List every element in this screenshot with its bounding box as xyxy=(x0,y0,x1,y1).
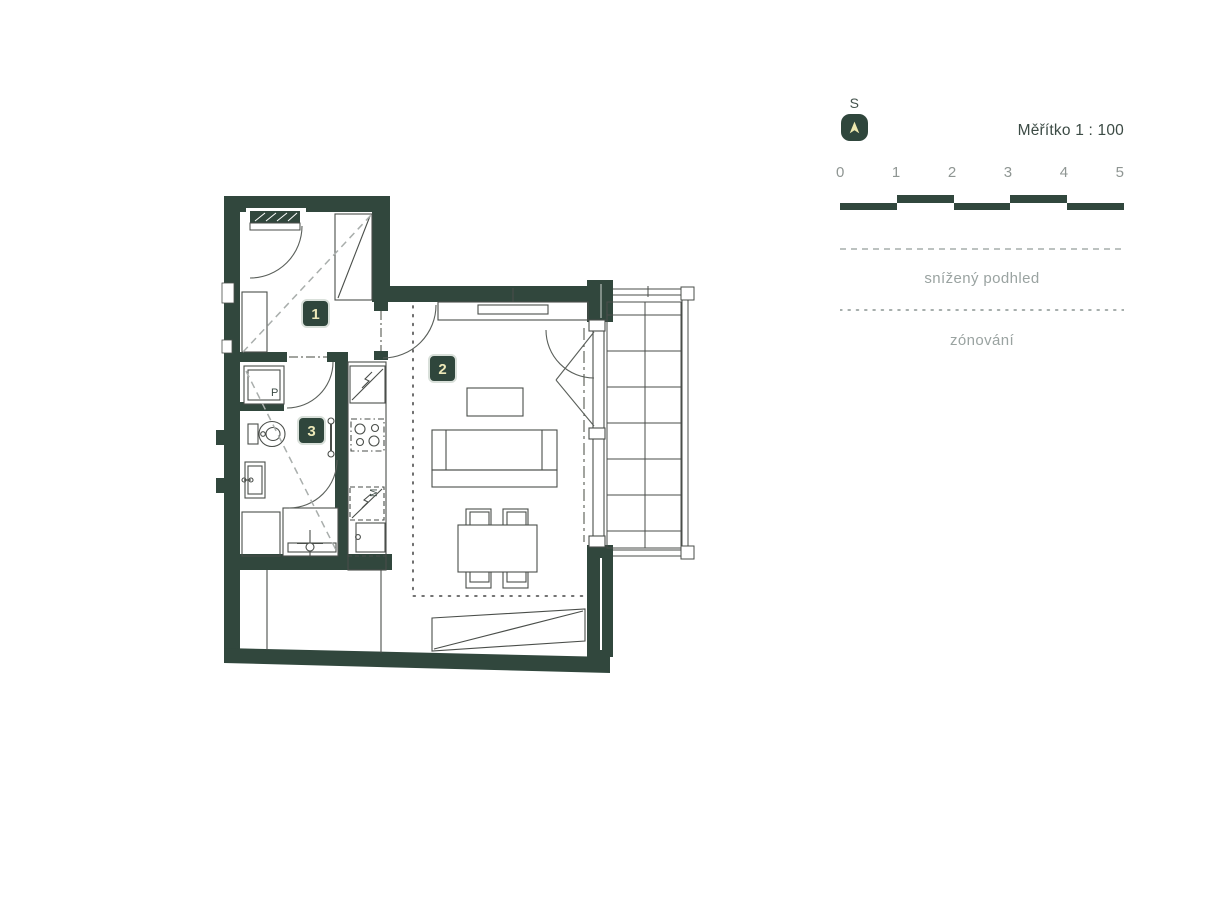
toilet-icon xyxy=(248,422,285,447)
zoning-label: zónování xyxy=(840,332,1124,349)
shower-door-swing xyxy=(289,460,337,508)
kitchen-counter xyxy=(348,362,386,570)
kitchen: M xyxy=(348,362,386,570)
sink-icon xyxy=(356,523,385,552)
balcony-door xyxy=(546,330,594,426)
dining-set-icon xyxy=(458,509,537,588)
room-badges: 1 2 3 xyxy=(298,300,456,444)
scale-tick: 4 xyxy=(1060,164,1068,181)
dishwasher-icon: M xyxy=(350,487,384,520)
zoning-legend-line xyxy=(840,308,1124,312)
svg-text:3: 3 xyxy=(307,423,315,440)
door-hall-bath xyxy=(287,357,333,408)
scale-tick: 3 xyxy=(1004,164,1012,181)
balcony-glazing xyxy=(584,320,605,547)
svg-text:P: P xyxy=(271,387,278,399)
scale-tick: 0 xyxy=(836,164,844,181)
north-label: S xyxy=(841,95,868,111)
room-badge-3: 3 xyxy=(298,417,325,444)
sofa-icon xyxy=(432,430,557,487)
entry-door-swing xyxy=(250,226,302,278)
balcony xyxy=(607,286,694,559)
scale-label: Měřítko 1 : 100 xyxy=(824,122,1124,140)
scale-tick: 5 xyxy=(1116,164,1124,181)
door-hall-living xyxy=(381,305,436,358)
scale-bar xyxy=(840,195,1124,210)
washbasin-icon xyxy=(242,462,265,498)
svg-text:M: M xyxy=(369,489,380,497)
entry-door xyxy=(246,208,306,278)
bathroom: P xyxy=(242,366,338,557)
room-badge-2: 2 xyxy=(429,355,456,382)
hall-cabinet xyxy=(242,292,267,352)
svg-text:2: 2 xyxy=(438,361,446,378)
balcony-decking xyxy=(607,302,681,548)
fridge-icon xyxy=(350,366,385,403)
room-badge-1: 1 xyxy=(302,300,329,327)
cooktop-icon xyxy=(351,419,384,451)
shower-icon xyxy=(283,508,338,557)
washing-machine-icon: P xyxy=(244,366,284,404)
bath-closet xyxy=(242,512,280,556)
bottom-wardrobe-icon xyxy=(432,609,585,651)
lowered-ceiling-legend-line xyxy=(840,247,1124,251)
coffee-table-icon xyxy=(467,388,523,416)
svg-text:1: 1 xyxy=(311,306,319,323)
towel-radiator-icon xyxy=(328,418,334,457)
living-room xyxy=(267,288,588,653)
hall-wardrobe xyxy=(335,214,372,300)
scale-tick: 2 xyxy=(948,164,956,181)
scale-ticks: 0 1 2 3 4 5 xyxy=(836,164,1124,181)
lowered-ceiling-label: snížený podhled xyxy=(840,270,1124,287)
walls xyxy=(216,196,613,673)
scale-tick: 1 xyxy=(892,164,900,181)
